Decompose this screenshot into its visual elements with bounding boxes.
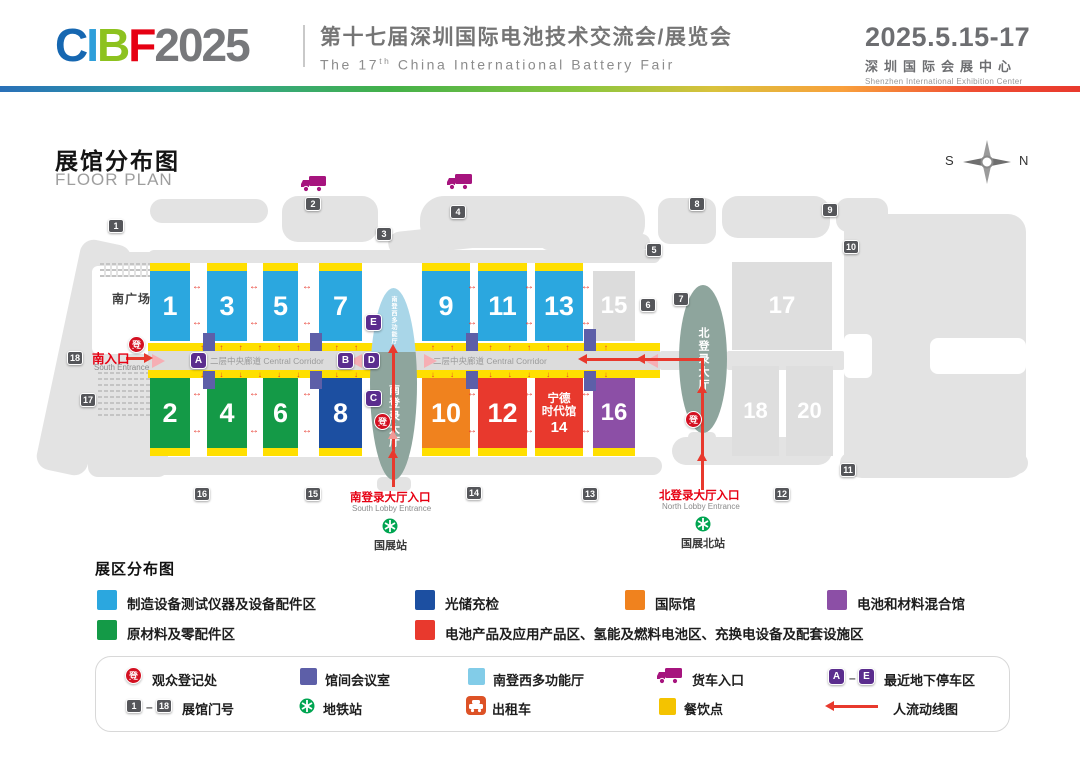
- flow-arrowhead-icon: [388, 430, 398, 439]
- meeting-room: [584, 371, 596, 391]
- gate-8: 8: [689, 197, 705, 211]
- gate-13: 13: [582, 487, 598, 501]
- meeting-room: [203, 333, 215, 351]
- zone-swatch-purple: [827, 590, 847, 610]
- passage-arrow-icon: ↔: [249, 281, 259, 292]
- multifunction-hall-swatch: [468, 668, 485, 685]
- legend-metro-label: 地铁站: [323, 699, 362, 718]
- gate-7: 7: [673, 292, 689, 306]
- passage-arrow-icon: ↔: [302, 317, 312, 328]
- map-title-en: FLOOR PLAN: [55, 170, 173, 190]
- passage-arrow-icon: ↔: [581, 281, 591, 292]
- zone-label-international: 国际馆: [655, 593, 696, 613]
- registration-badge-legend: 登: [125, 667, 142, 684]
- passage-arrow-icon: ↔: [192, 317, 202, 328]
- legend-parking-label: 最近地下停车区: [884, 670, 975, 689]
- gate-18: 18: [67, 351, 83, 365]
- passage-arrow-icon: ↔: [249, 317, 259, 328]
- building-notch: [930, 338, 1026, 374]
- building-shape: [150, 199, 268, 223]
- registration-badge: 登: [128, 336, 145, 353]
- venue-cn: 深圳国际会展中心: [865, 56, 1030, 75]
- compass: S N: [943, 138, 1033, 186]
- flow-line-south-entrance: [392, 455, 395, 487]
- gate-swatch-18: 18: [156, 699, 172, 713]
- gate-6: 6: [640, 298, 656, 312]
- dining-strip: [422, 263, 470, 271]
- north-lobby-entrance-label-en: North Lobby Entrance: [662, 502, 740, 511]
- truck-icon: [446, 172, 474, 192]
- logo-letter-b: B: [97, 19, 128, 71]
- fair-title-en: The 17th China International Battery Fai…: [320, 56, 732, 73]
- legend-flow-label: 人流动线图: [893, 699, 958, 718]
- passage-arrow-icon: ↔: [249, 425, 259, 436]
- south-entrance-label-en: South Entrance: [94, 363, 149, 372]
- gate-14: 14: [466, 486, 482, 500]
- passage-arrow-icon: ↔: [524, 388, 534, 399]
- dining-strip: [319, 448, 362, 456]
- parking-marker-d: D: [363, 352, 380, 369]
- passage-arrow-icon: ↔: [467, 425, 477, 436]
- logo-letter-c: C: [55, 19, 86, 71]
- meeting-room: [203, 371, 215, 389]
- gate-10: 10: [843, 240, 859, 254]
- legend-truck-label: 货车入口: [692, 670, 744, 689]
- parking-marker-b: B: [337, 352, 354, 369]
- gate-15: 15: [305, 487, 321, 501]
- corridor-label-west: 二层中央廊道 Central Corridor: [210, 355, 324, 367]
- meeting-room-swatch: [300, 668, 317, 685]
- compass-south-label: S: [945, 153, 954, 168]
- hall-14-catl: 宁德时代馆14: [535, 378, 583, 448]
- range-dash: –: [849, 671, 856, 685]
- header-gradient-bar: [0, 86, 1080, 92]
- logo-letter-i: I: [86, 19, 97, 71]
- passage-arrow-icon: ↔: [302, 281, 312, 292]
- passage-arrow-icon: ↔: [302, 388, 312, 399]
- dining-strip: [150, 263, 190, 271]
- zone-label-materials: 原材料及零配件区: [127, 623, 235, 643]
- gate-12: 12: [774, 487, 790, 501]
- hall-3: 3: [207, 271, 247, 341]
- fair-dates: 2025.5.15-17: [865, 22, 1030, 53]
- passage-arrow-icon: ↔: [249, 388, 259, 399]
- dining-strip: [150, 448, 190, 456]
- legend-meeting-label: 馆间会议室: [325, 670, 390, 689]
- logo-letter-f: F: [128, 19, 154, 71]
- building-shape: [540, 234, 650, 250]
- gate-9: 9: [822, 203, 838, 217]
- truck-icon: [300, 174, 328, 194]
- zone-legend-title: 展区分布图: [95, 558, 175, 579]
- dining-strip: [478, 263, 527, 271]
- gate-1: 1: [108, 219, 124, 233]
- truck-icon-legend: [656, 666, 684, 686]
- date-venue-block: 2025.5.15-17 深圳国际会展中心 Shenzhen Internati…: [865, 22, 1030, 86]
- logo-year: 2025: [154, 19, 248, 71]
- legend-registration-label: 观众登记处: [152, 670, 217, 689]
- zone-swatch-blue: [97, 590, 117, 610]
- flow-arrow-pink-icon: [424, 354, 437, 368]
- dining-strip: [263, 448, 298, 456]
- meeting-room: [310, 371, 322, 389]
- dining-strip: [535, 263, 583, 271]
- hall-7: 7: [319, 271, 362, 341]
- metro-icon: [381, 517, 399, 535]
- legend-multihall-label: 南登西多功能厅: [493, 670, 584, 689]
- corridor-label-east: 二层中央廊道 Central Corridor: [433, 355, 547, 367]
- compass-star-icon: [961, 138, 1013, 186]
- registration-badge: 登: [685, 411, 702, 428]
- dining-swatch: [659, 698, 676, 715]
- legend-gate-label: 展馆门号: [182, 699, 234, 718]
- flow-arrowhead-icon: [578, 354, 587, 364]
- passage-arrow-icon: ↔: [467, 317, 477, 328]
- taxi-icon: [466, 696, 486, 715]
- zone-label-solar-storage: 光储充检: [445, 593, 499, 613]
- zone-swatch-orange: [625, 590, 645, 610]
- flow-arrow-pink-icon: [645, 354, 658, 368]
- registration-badge: 登: [374, 413, 391, 430]
- gate-16: 16: [194, 487, 210, 501]
- parking-marker-a: A: [190, 352, 207, 369]
- passage-arrow-icon: ↔: [192, 388, 202, 399]
- hall-11: 11: [478, 271, 527, 341]
- hall-6: 6: [263, 378, 298, 448]
- hall-18: 18: [732, 366, 779, 456]
- hall-17: 17: [732, 262, 832, 350]
- south-lobby-entrance-label-en: South Lobby Entrance: [352, 504, 431, 513]
- flow-arrowhead-icon: [697, 452, 707, 461]
- passage-arrow-icon: ↔: [302, 425, 312, 436]
- passage-arrow-icon: ↔: [192, 425, 202, 436]
- fair-title-block: 第十七届深圳国际电池技术交流会/展览会 The 17th China Inter…: [320, 21, 732, 73]
- venue-en: Shenzhen International Exhibition Center: [865, 77, 1030, 86]
- south-plaza-label: 南广场: [112, 290, 151, 307]
- texture-dots: [98, 368, 150, 416]
- flow-arrow-pink-icon: [152, 354, 165, 368]
- dining-strip: [478, 448, 527, 456]
- building-notch: [844, 334, 872, 378]
- passage-arrow-icon: ↔: [524, 425, 534, 436]
- cibf-logo: CIBF2025: [55, 18, 249, 72]
- zone-label-mixed: 电池和材料混合馆: [857, 593, 965, 613]
- gate-swatch-1: 1: [126, 699, 142, 713]
- symbol-legend-box: [95, 656, 1010, 732]
- gate-5: 5: [646, 243, 662, 257]
- building-shape: [658, 198, 716, 244]
- flow-arrowhead-icon: [697, 384, 707, 393]
- passage-arrow-icon: ↔: [581, 317, 591, 328]
- parking-marker-a-legend: A: [828, 668, 845, 685]
- hall-13: 13: [535, 271, 583, 341]
- hall-16: 16: [593, 378, 635, 448]
- south-lobby-entrance-label: 南登录大厅入口: [350, 489, 431, 505]
- dining-strip: [422, 448, 470, 456]
- building-shape: [148, 250, 660, 263]
- north-lobby-entrance-label: 北登录大厅入口: [659, 487, 740, 503]
- dining-strip: [207, 448, 247, 456]
- zone-label-battery-products: 电池产品及应用产品区、氢能及燃料电池区、充换电设备及配套设施区: [445, 623, 864, 643]
- flow-arrowhead-icon: [388, 449, 398, 458]
- flow-legend-arrow: [832, 705, 878, 708]
- hall-8: 8: [319, 378, 362, 448]
- legend-dining-label: 餐饮点: [684, 699, 723, 718]
- gate-2: 2: [305, 197, 321, 211]
- metro-station-south-label: 国展站: [374, 537, 407, 553]
- meeting-room: [466, 371, 478, 389]
- passage-arrow-icon: ↔: [467, 281, 477, 292]
- passage-arrow-icon: ↔: [467, 388, 477, 399]
- metro-icon-legend: [298, 697, 316, 715]
- dining-strip: [263, 263, 298, 271]
- hall-2: 2: [150, 378, 190, 448]
- metro-station-north-label: 国展北站: [681, 535, 725, 551]
- hall-15: 15: [593, 271, 635, 341]
- zone-swatch-green: [97, 620, 117, 640]
- passage-arrow-icon: ↔: [524, 317, 534, 328]
- zone-label-equipment: 制造设备测试仪器及设备配件区: [127, 593, 316, 613]
- hall-10: 10: [422, 378, 470, 448]
- parking-marker-e: E: [365, 314, 382, 331]
- flow-arrowhead-icon: [388, 344, 398, 353]
- gate-11: 11: [840, 463, 856, 477]
- flow-arrowhead-icon: [636, 354, 645, 364]
- dining-strip: [319, 263, 362, 271]
- range-dash: –: [146, 700, 153, 714]
- flow-arrowhead-icon: [825, 701, 834, 711]
- meeting-room: [584, 329, 596, 351]
- meeting-room: [310, 333, 322, 351]
- gate-4: 4: [450, 205, 466, 219]
- dining-strip: [593, 448, 635, 456]
- parking-marker-e-legend: E: [858, 668, 875, 685]
- gate-3: 3: [376, 227, 392, 241]
- gate-17: 17: [80, 393, 96, 407]
- hall-20: 20: [786, 366, 833, 456]
- zone-swatch-red: [415, 620, 435, 640]
- compass-north-label: N: [1019, 153, 1028, 168]
- legend-taxi-label: 出租车: [492, 699, 531, 718]
- hall-12: 12: [478, 378, 527, 448]
- flow-arrowhead-icon: [144, 353, 153, 363]
- flow-line-north: [701, 358, 704, 490]
- building-shape: [282, 196, 378, 242]
- floor-plan-page: CIBF2025 第十七届深圳国际电池技术交流会/展览会 The 17th Ch…: [0, 0, 1080, 763]
- building-shape: [722, 196, 830, 238]
- south-lobby-west-label: 南登西多功能厅: [389, 296, 398, 345]
- fair-title-cn: 第十七届深圳国际电池技术交流会/展览会: [320, 21, 732, 51]
- passage-arrow-icon: ↔: [581, 425, 591, 436]
- hall-5: 5: [263, 271, 298, 341]
- parking-marker-c: C: [365, 390, 382, 407]
- zone-swatch-navy: [415, 590, 435, 610]
- metro-icon: [694, 515, 712, 533]
- header-divider: [303, 25, 305, 67]
- passage-arrow-icon: ↔: [524, 281, 534, 292]
- dining-strip: [535, 448, 583, 456]
- hall-9: 9: [422, 271, 470, 341]
- meeting-room: [466, 333, 478, 351]
- hall-1: 1: [150, 271, 190, 341]
- dining-strip: [207, 263, 247, 271]
- passage-arrow-icon: ↔: [192, 281, 202, 292]
